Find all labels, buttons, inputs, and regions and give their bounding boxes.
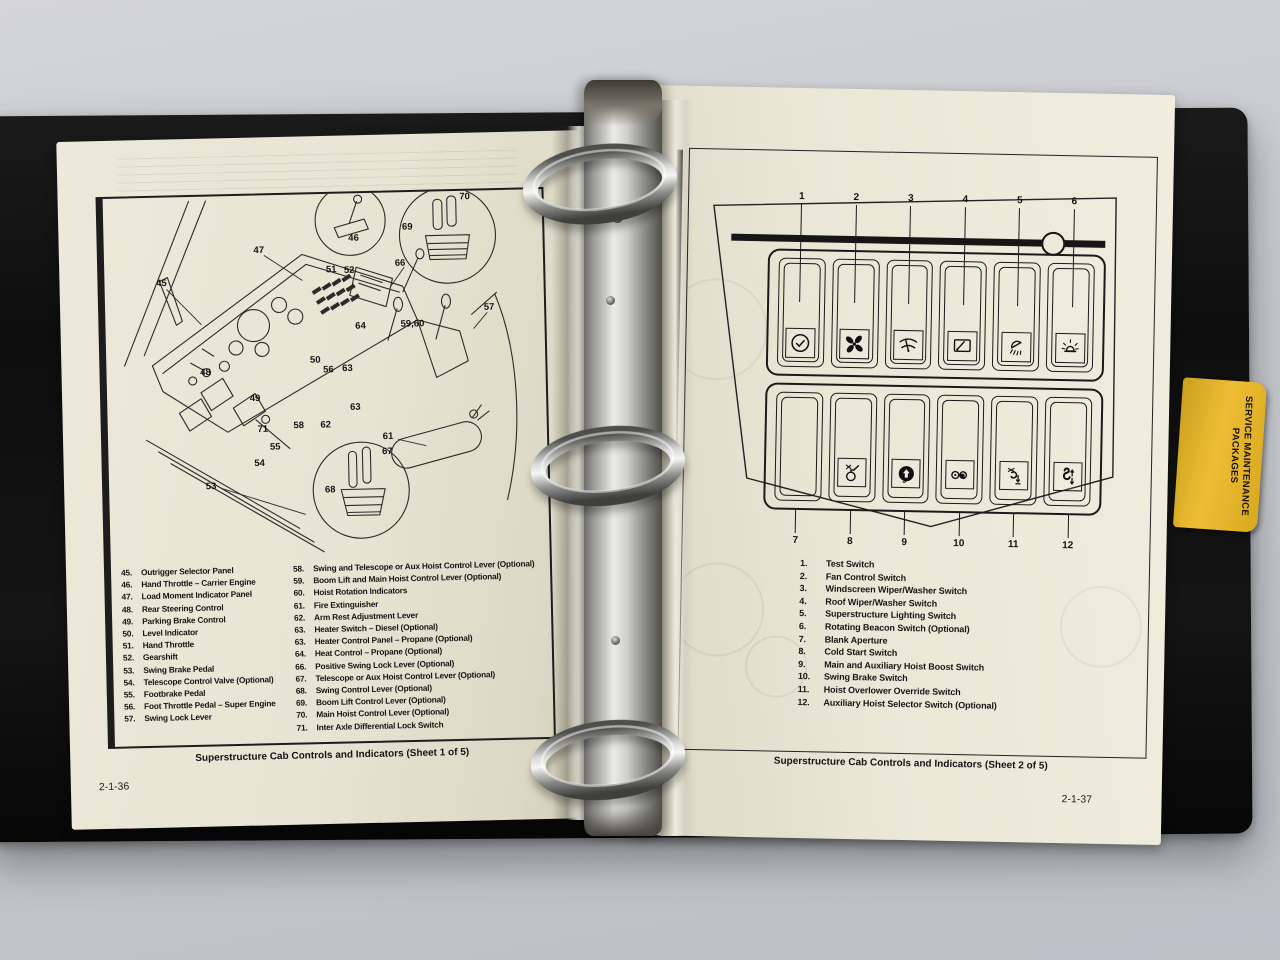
- callout-number: 54: [254, 458, 265, 469]
- leader-line: [1013, 513, 1015, 537]
- switch-cell: [882, 394, 931, 504]
- legend-item-number: 51.: [123, 639, 143, 652]
- switch-callout-column: 9: [880, 511, 928, 549]
- callout-number: 63: [342, 363, 353, 374]
- callout-number: 64: [355, 321, 366, 332]
- left-legend: 45. Outrigger Selector Panel 46. Hand Th…: [121, 557, 555, 738]
- switch-callout-column: 12: [1044, 514, 1092, 552]
- legend-item-number: 4.: [799, 595, 825, 608]
- legend-item-number: 54.: [123, 676, 143, 689]
- legend-item-number: 8.: [798, 645, 824, 658]
- hook-down-icon: [1001, 463, 1025, 487]
- switch-number: 9: [901, 537, 907, 548]
- legend-item-number: 9.: [798, 658, 824, 671]
- tab-label: SERVICE MAINTENANCE PACKAGES: [1186, 386, 1255, 524]
- legend-item-number: 59.: [293, 574, 313, 587]
- legend-item-number: 56.: [124, 700, 144, 713]
- switch-number: 2: [853, 192, 859, 203]
- legend-item-number: 5.: [799, 607, 825, 620]
- switch-row-top: [766, 248, 1106, 381]
- callout-number: 52: [344, 265, 355, 276]
- callout-number: 51: [326, 264, 337, 275]
- switch-icon-box: [839, 329, 870, 360]
- cold-start-icon: [840, 460, 864, 484]
- legend-item-number: 64.: [295, 648, 315, 661]
- switch-icon-box: [1055, 333, 1086, 364]
- right-figure-frame: 1 2 3 4: [677, 148, 1157, 759]
- switch-cell: [990, 396, 1039, 506]
- switch-cell: [885, 260, 934, 370]
- legend-item: 57. Swing Lock Lever: [124, 709, 296, 725]
- switch-number: 11: [1008, 539, 1019, 550]
- legend-item-number: 67.: [295, 672, 315, 685]
- legend-item-number: 53.: [123, 664, 143, 677]
- callout-number: 62: [320, 419, 331, 430]
- switch-callout-column: 7: [771, 508, 819, 546]
- swing-brake-icon: [947, 462, 971, 486]
- rocker-switch: [779, 397, 818, 497]
- legend-item-number: 45.: [121, 566, 141, 579]
- legend-item-number: 61.: [294, 599, 314, 612]
- light-icon: [1004, 335, 1028, 359]
- beacon-icon: [1058, 336, 1082, 360]
- switch-icon-box: [837, 458, 867, 488]
- switch-icon-box: [893, 330, 924, 361]
- switch-icon-box: [1001, 332, 1032, 363]
- callout-number: 69: [402, 221, 413, 232]
- show-through-text: [117, 150, 518, 193]
- legend-item-number: 1.: [800, 557, 826, 570]
- left-page-number: 2-1-36: [99, 781, 130, 794]
- leader-line: [795, 509, 797, 533]
- switch-cell: [936, 395, 985, 505]
- switch-row-bottom: [763, 382, 1103, 515]
- binder-ring-bottom: [519, 703, 696, 816]
- service-maintenance-tab-divider: SERVICE MAINTENANCE PACKAGES: [1173, 377, 1267, 532]
- boost-icon: [894, 461, 918, 485]
- switch-callout-column: 8: [826, 510, 874, 548]
- switch-cell: [1046, 263, 1095, 373]
- cab-illustration: 45 46 47 48 49 50 51 52: [103, 189, 559, 563]
- switch-number: 10: [953, 538, 964, 549]
- legend-item-number: 49.: [122, 615, 142, 628]
- legend-item-number: 2.: [800, 570, 826, 583]
- callout-number: 50: [310, 355, 321, 366]
- callout-number: 57: [484, 302, 495, 313]
- switch-cell: [992, 262, 1041, 372]
- callout-number: 53: [206, 481, 217, 492]
- callout-number: 66: [395, 258, 406, 269]
- legend-item-number: 7.: [799, 633, 825, 646]
- switch-number: 5: [1017, 195, 1023, 206]
- callout-number: 63: [350, 402, 361, 413]
- switch-number: 8: [847, 536, 853, 547]
- photo-of-open-service-manual: SERVICE MAINTENANCE PACKAGES 1: [0, 0, 1280, 960]
- legend-item-number: 10.: [798, 670, 824, 683]
- switch-icon-box: [999, 461, 1029, 491]
- fan-icon: [842, 332, 866, 356]
- leader-line: [904, 511, 906, 535]
- callout-number: 59,60: [400, 318, 424, 330]
- legend-item-number: 66.: [295, 660, 315, 673]
- callout-number: 71: [257, 424, 268, 435]
- hook-updown-icon: [1055, 464, 1079, 488]
- right-page-number: 2-1-37: [1062, 793, 1093, 806]
- binder-ring-middle: [519, 409, 696, 522]
- check-icon: [789, 331, 813, 355]
- switch-number: 6: [1071, 196, 1077, 207]
- spine-rivet: [606, 296, 615, 305]
- leader-line: [958, 512, 960, 536]
- left-legend-column-2: 58. Swing and Telescope or Aux Hoist Con…: [293, 557, 555, 734]
- legend-item-number: 69.: [296, 696, 316, 709]
- switch-icon-box: [947, 331, 978, 362]
- switch-callout-column: 10: [935, 512, 983, 550]
- callout-number: 47: [253, 245, 264, 256]
- right-page: 1 2 3 4: [631, 85, 1175, 845]
- legend-item-label: Swing Lock Lever: [144, 709, 296, 725]
- legend-item-number: 63.: [295, 635, 315, 648]
- switch-icon-box: [1053, 462, 1083, 492]
- legend-item-number: 6.: [799, 620, 825, 633]
- switch-number: 4: [962, 194, 968, 205]
- right-legend-list: 1. Test Switch 2. Fan Control Switch 3. …: [797, 557, 999, 712]
- switch-cell: [831, 259, 880, 369]
- spine-rivet: [611, 636, 620, 645]
- switch-icon-box: [785, 328, 816, 359]
- callout-number: 68: [325, 484, 336, 495]
- legend-item-number: 58.: [293, 562, 313, 575]
- legend-item-number: 71.: [296, 721, 316, 734]
- binder-ring-top: [511, 126, 689, 242]
- legend-item-number: 68.: [296, 684, 316, 697]
- legend-item-number: 50.: [122, 627, 142, 640]
- switch-cell: [1043, 397, 1092, 507]
- legend-item-number: 55.: [124, 688, 144, 701]
- switch-icon-box: [945, 460, 975, 490]
- legend-item-number: 63.: [294, 623, 314, 636]
- leader-line: [849, 510, 851, 534]
- left-figure-frame: 45 46 47 48 49 50 51 52: [96, 187, 556, 749]
- legend-item-number: 57.: [124, 713, 144, 726]
- callout-number: 45: [156, 278, 167, 289]
- legend-item-number: 11.: [798, 683, 824, 696]
- legend-item-number: 47.: [121, 591, 141, 604]
- callout-number: 46: [348, 233, 359, 244]
- legend-item-number: 60.: [293, 587, 313, 600]
- switch-cell: [938, 261, 987, 371]
- switch-callout-column: 11: [989, 513, 1037, 551]
- left-figure-caption: Superstructure Cab Controls and Indicato…: [108, 745, 556, 766]
- callout-number: 49: [250, 393, 261, 404]
- legend-item-number: 48.: [122, 603, 142, 616]
- leader-line: [1067, 514, 1069, 538]
- callout-number: 56: [323, 364, 334, 375]
- switch-number: 12: [1062, 540, 1073, 551]
- callout-number: 67: [382, 446, 393, 457]
- switch-number: 7: [792, 535, 798, 546]
- switch-cell: [828, 393, 877, 503]
- legend-item-number: 62.: [294, 611, 314, 624]
- switch-icon-box: [891, 459, 921, 489]
- legend-item-number: 3.: [799, 582, 825, 595]
- switch-cell: [774, 392, 823, 502]
- callout-number: 70: [459, 191, 470, 202]
- callout-number: 61: [383, 431, 394, 442]
- legend-item-number: 12.: [797, 696, 823, 709]
- switch-number: 1: [799, 191, 805, 202]
- switch-cell: [777, 258, 826, 368]
- wiper-screen-icon: [896, 333, 920, 357]
- switch-number: 3: [908, 193, 914, 204]
- callout-number: 48: [200, 367, 211, 378]
- callout-number: 55: [270, 442, 281, 453]
- switch-numbers-bottom: 7 8 9 10: [762, 508, 1101, 551]
- legend-item-number: 46.: [121, 578, 141, 591]
- callout-number: 58: [293, 420, 304, 431]
- left-legend-column-1: 45. Outrigger Selector Panel 46. Hand Th…: [121, 563, 297, 738]
- wiper-roof-icon: [950, 334, 974, 358]
- left-page: 45 46 47 48 49 50 51 52: [56, 130, 593, 830]
- legend-item-number: 70.: [296, 709, 316, 722]
- legend-item-number: 52.: [123, 652, 143, 665]
